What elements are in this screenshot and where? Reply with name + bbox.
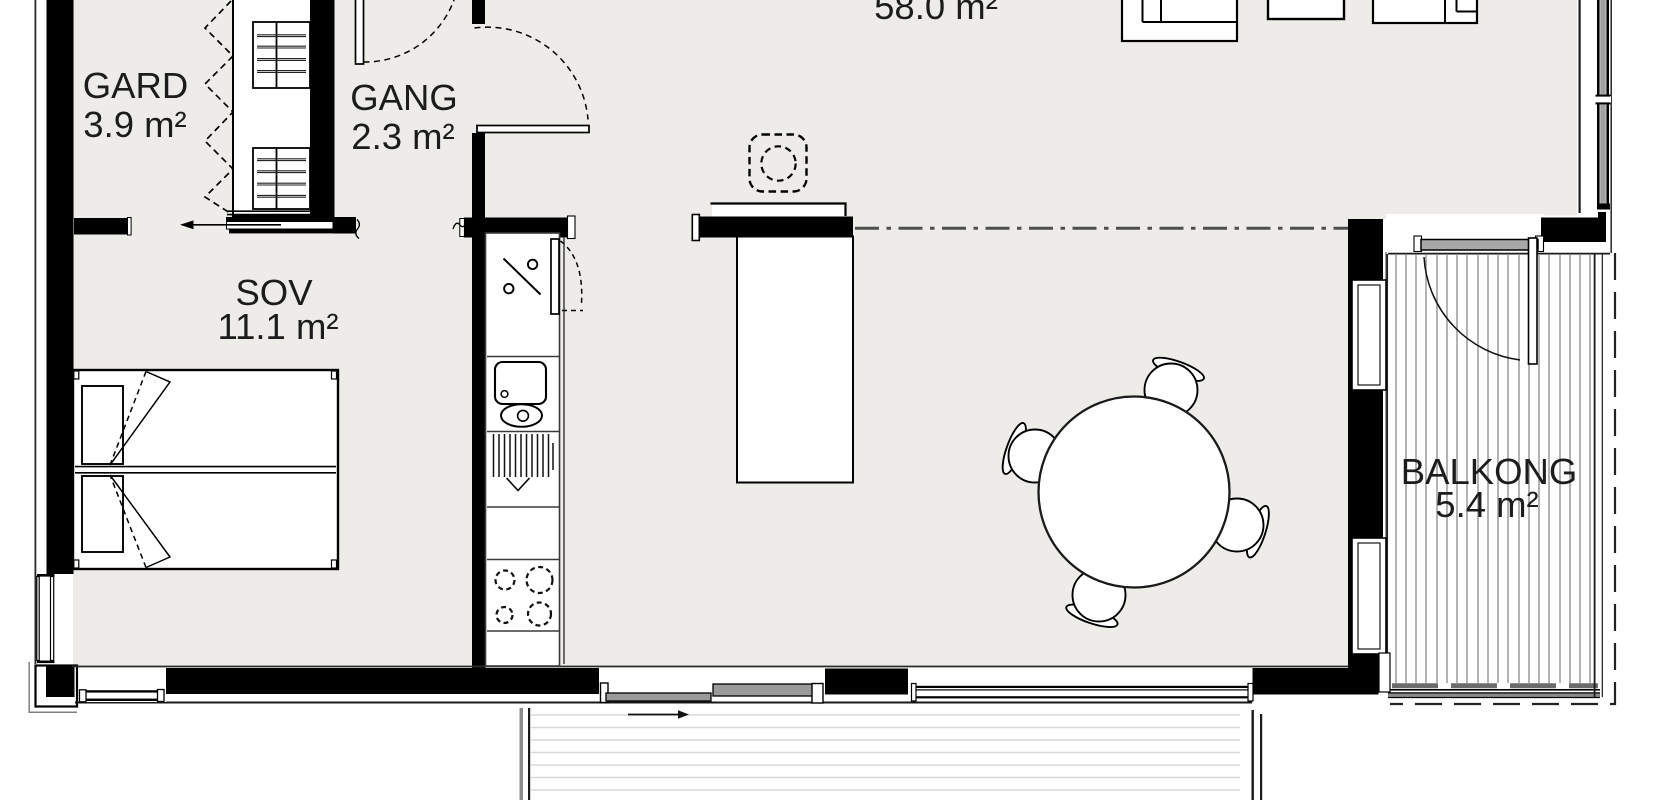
svg-text:5.4 m²: 5.4 m²	[1435, 484, 1538, 525]
svg-text:3.9 m²: 3.9 m²	[83, 104, 186, 145]
svg-text:2.3 m²: 2.3 m²	[351, 116, 454, 157]
svg-text:58.0 m²: 58.0 m²	[874, 0, 998, 27]
svg-text:GARD: GARD	[83, 65, 188, 106]
svg-text:11.1 m²: 11.1 m²	[217, 306, 338, 347]
svg-text:GANG: GANG	[350, 77, 458, 118]
